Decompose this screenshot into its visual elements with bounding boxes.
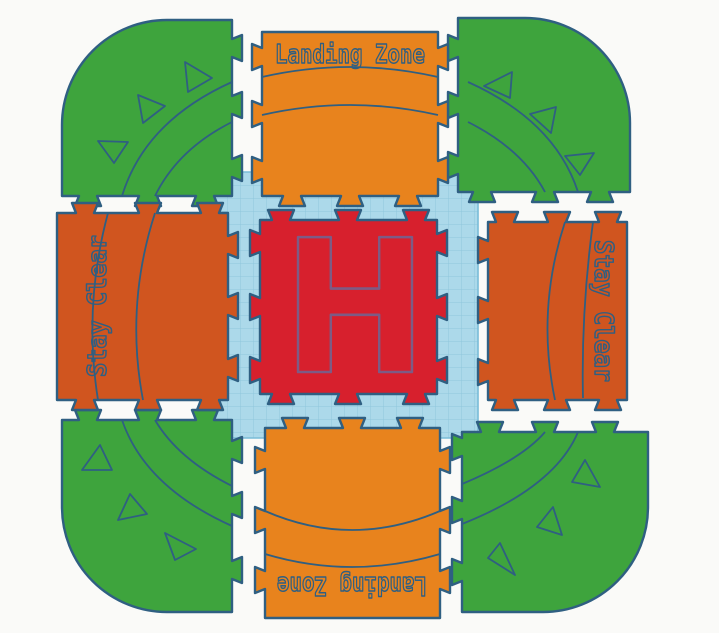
tile-helipad-center[interactable]: H — [250, 200, 447, 416]
tile-stay-clear-left[interactable]: Stay Clear — [57, 203, 238, 410]
landing-zone-label: Landing Zone — [275, 40, 425, 70]
tile-landing-zone-bottom[interactable]: Landing Zone — [255, 418, 450, 618]
stay-clear-label: Stay Clear — [83, 235, 113, 377]
stay-clear-label: Stay Clear — [588, 240, 618, 382]
tile-landing-zone-top[interactable]: Landing Zone — [252, 32, 448, 206]
tile-scene: Landing Zone Landing Zone Stay Clear Sta… — [57, 18, 648, 618]
tile-stay-clear-right[interactable]: Stay Clear — [478, 212, 627, 410]
design-canvas: Landing Zone Landing Zone Stay Clear Sta… — [0, 0, 719, 633]
landing-zone-label: Landing Zone — [277, 570, 427, 600]
helipad-h-marking: H — [282, 200, 428, 416]
